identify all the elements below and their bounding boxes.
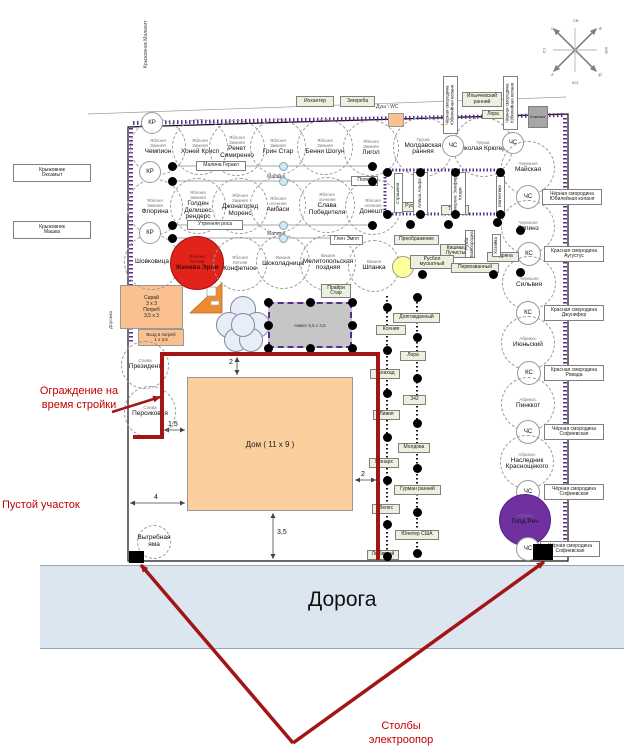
garden-plan: Дорога [0, 0, 624, 750]
red-overlay-linework [0, 0, 624, 750]
empty-plot-label: Пустой участок [2, 498, 97, 512]
construction-fence-line [133, 354, 378, 560]
pole-pointer-left [141, 565, 293, 743]
pole-pointer-right [293, 562, 544, 743]
power-poles-label: Столбы электроопор [356, 719, 446, 748]
construction-fence-label: Ограждение на время стройки [28, 384, 130, 413]
